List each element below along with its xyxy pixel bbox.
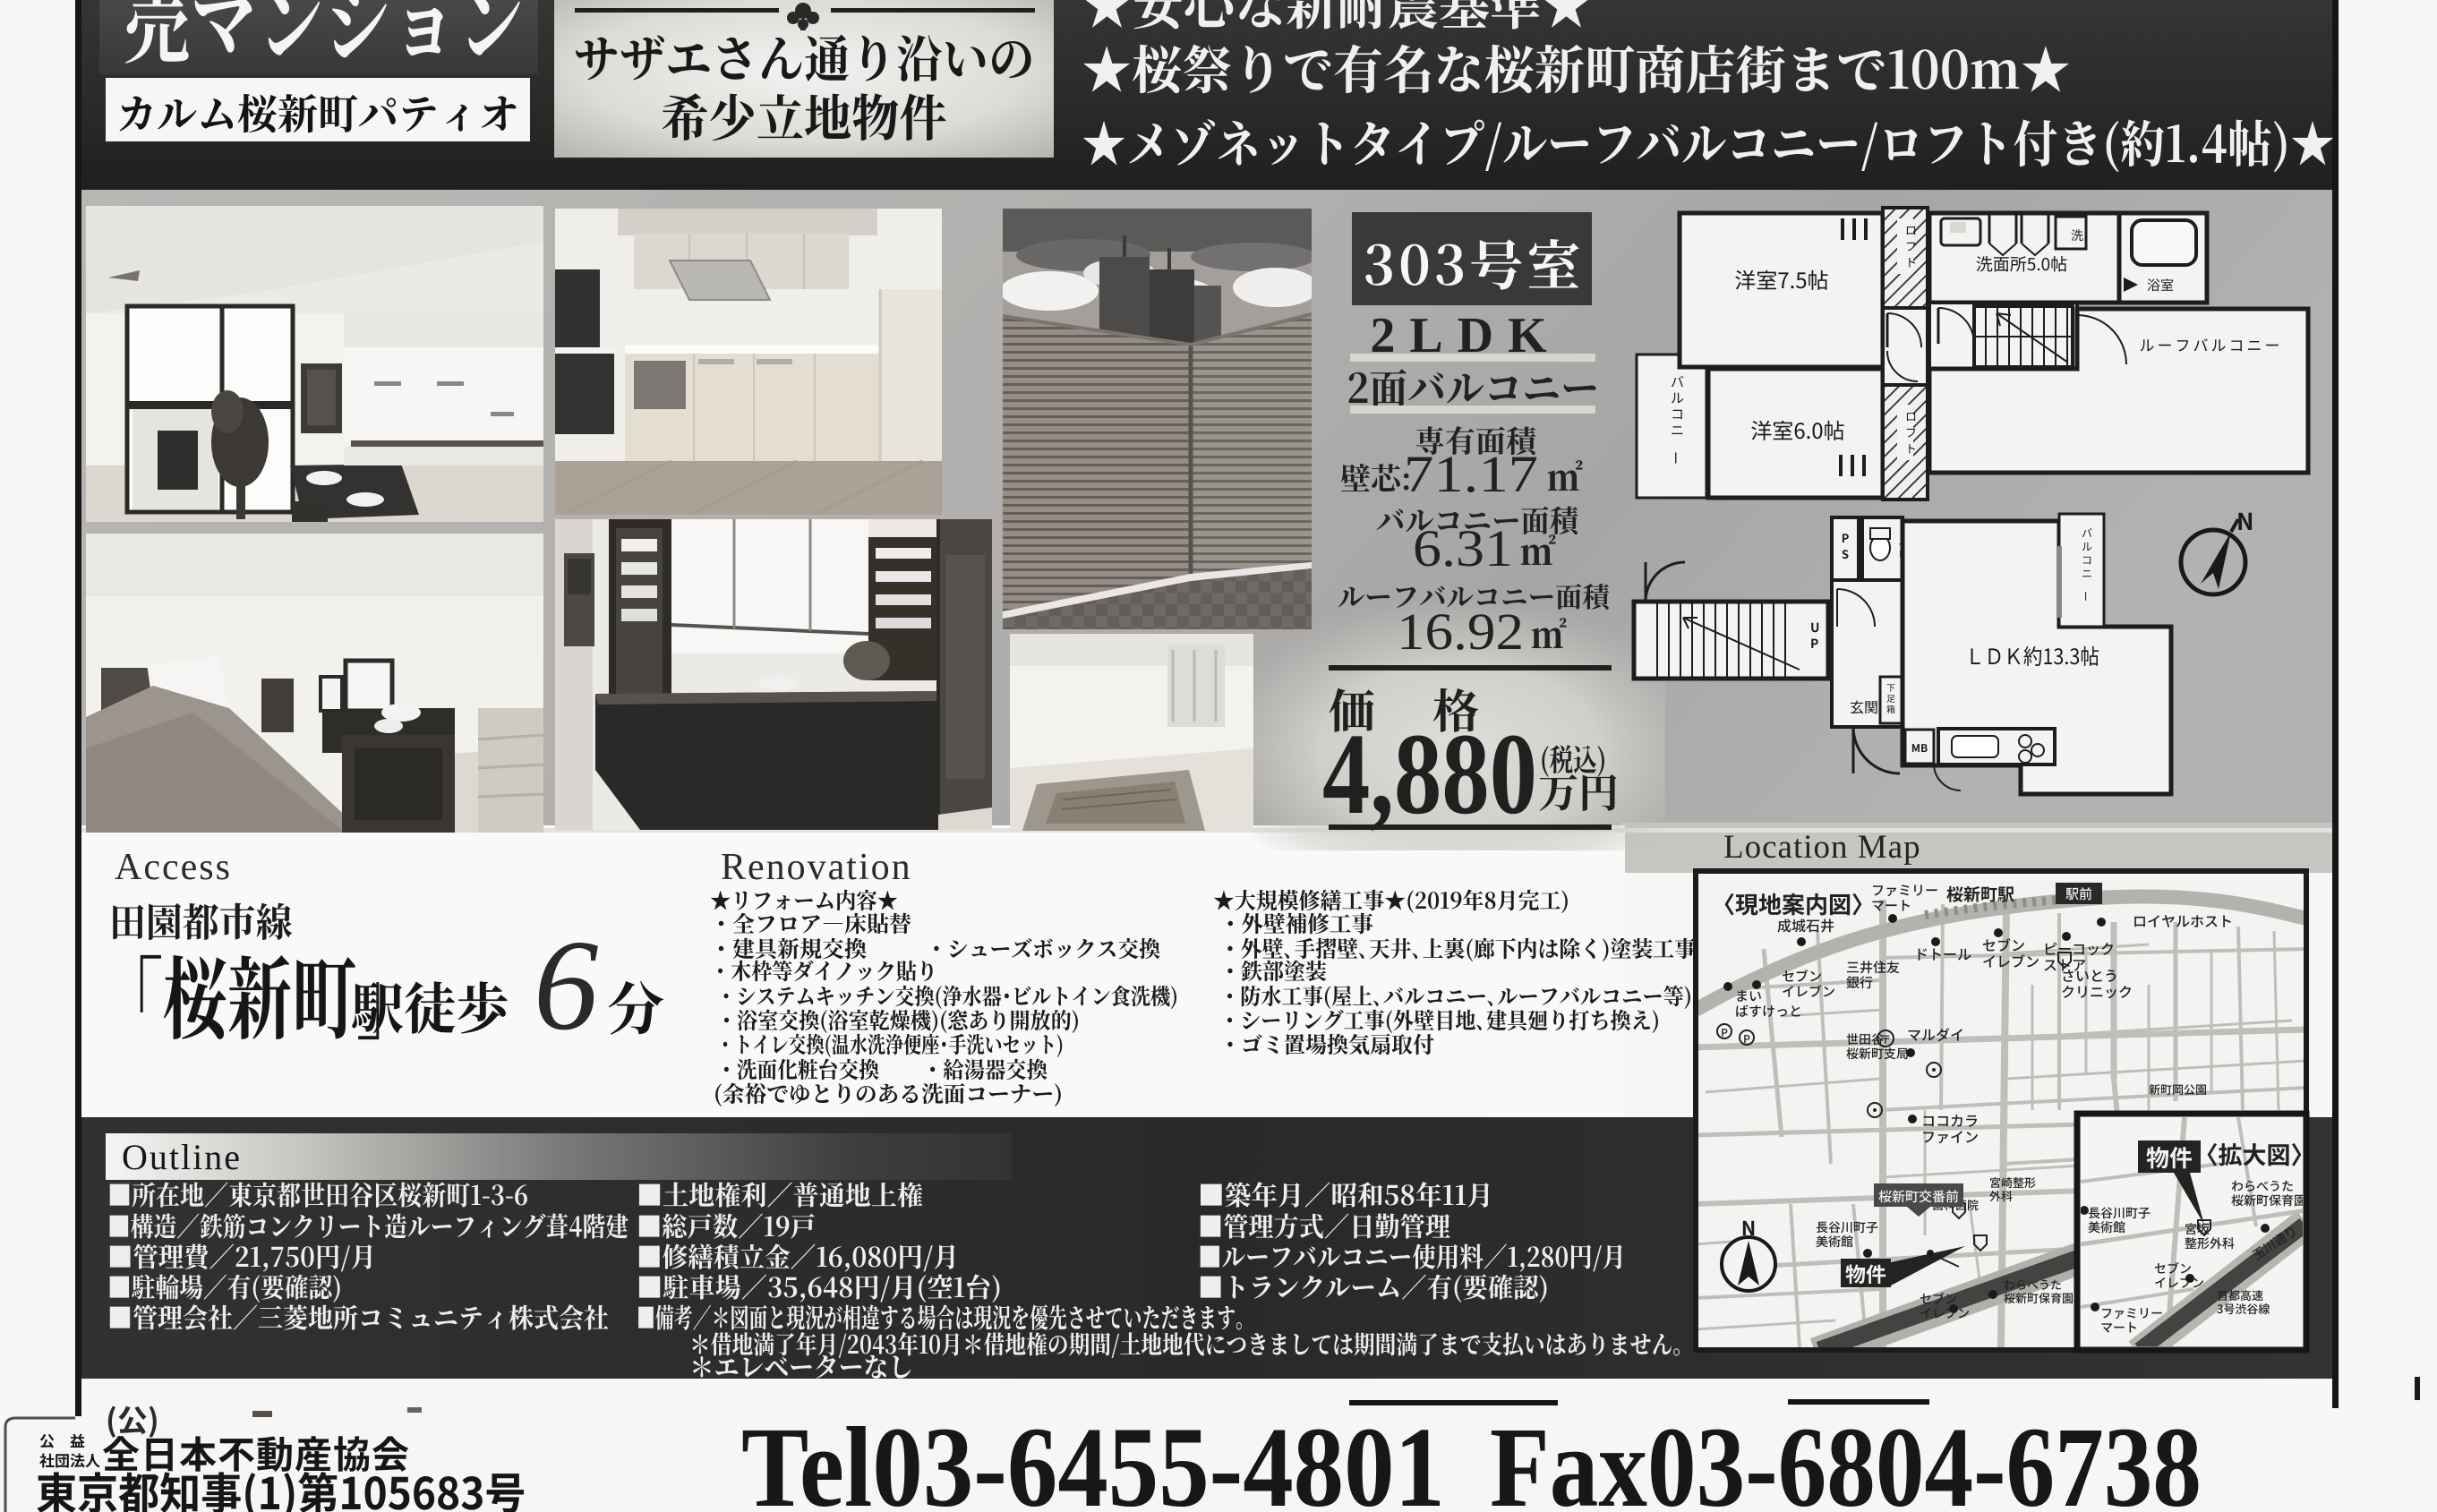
svg-text:16.92: 16.92: [1397, 602, 1524, 661]
svg-text:71.17: 71.17: [1404, 445, 1538, 503]
svg-text:6.31: 6.31: [1413, 519, 1513, 577]
svg-text:Renovation: Renovation: [721, 847, 912, 888]
svg-text:Outline: Outline: [122, 1137, 242, 1177]
svg-text:4,880: 4,880: [1322, 710, 1537, 839]
svg-text:Location Map: Location Map: [1723, 829, 1921, 866]
svg-text:Access: Access: [115, 847, 232, 888]
svg-text:6: 6: [534, 914, 599, 1057]
svg-text:Fax03-6804-6738: Fax03-6804-6738: [1490, 1404, 2202, 1512]
svg-text:Tel03-6455-4801: Tel03-6455-4801: [741, 1404, 1445, 1512]
